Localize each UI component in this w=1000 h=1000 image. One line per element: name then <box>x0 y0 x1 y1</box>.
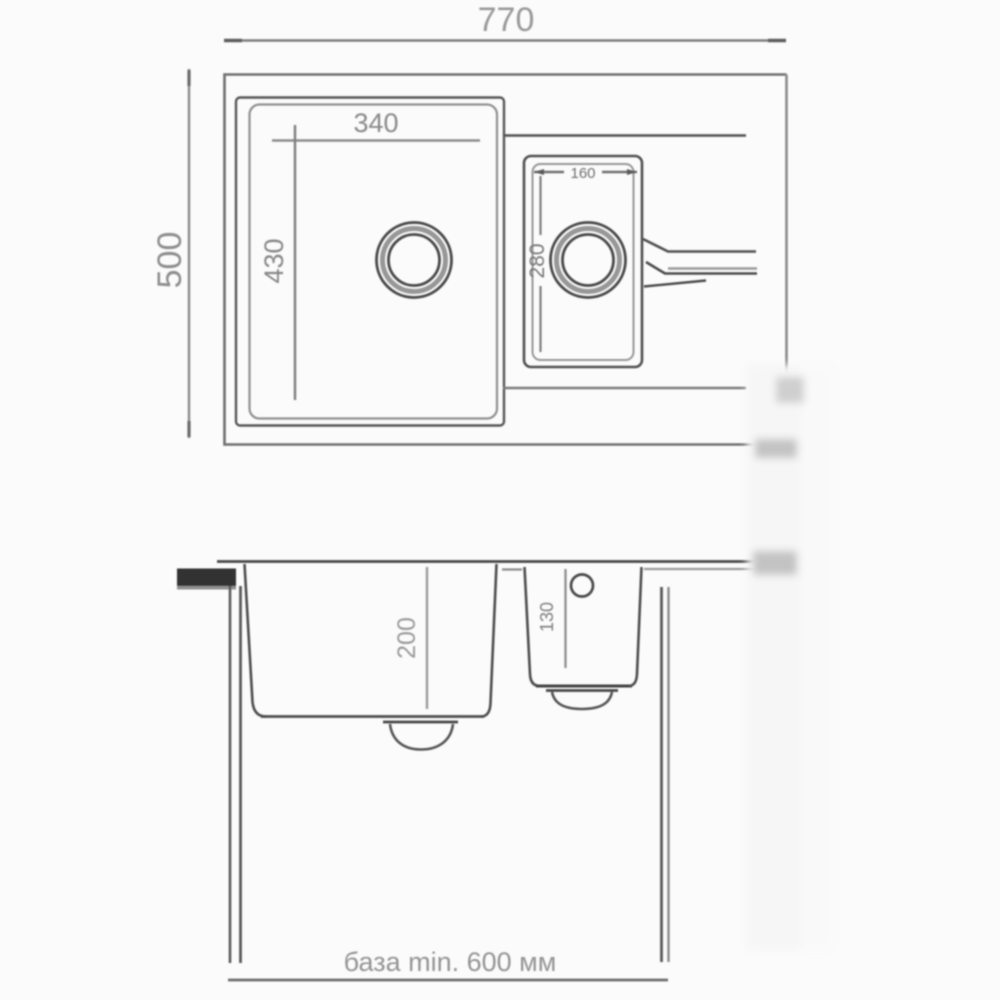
svg-text:160: 160 <box>570 165 595 182</box>
svg-text:430: 430 <box>259 238 289 283</box>
svg-text:770: 770 <box>478 1 535 39</box>
svg-text:200: 200 <box>393 617 421 659</box>
svg-text:130: 130 <box>537 602 557 632</box>
svg-text:база min. 600 мм: база min. 600 мм <box>344 947 557 977</box>
svg-text:340: 340 <box>353 108 398 138</box>
svg-text:500: 500 <box>151 232 189 289</box>
svg-text:280: 280 <box>526 243 549 278</box>
